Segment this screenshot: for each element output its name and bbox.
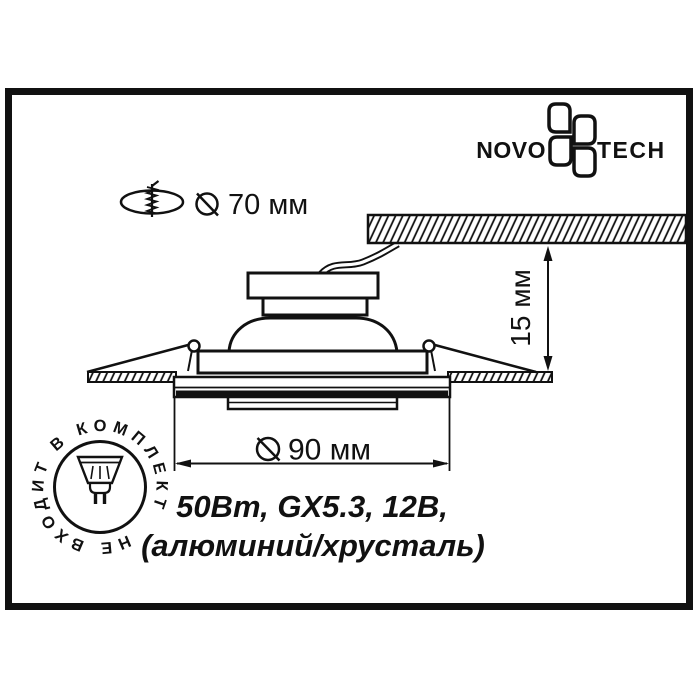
brand-wordmark-left: NOVO bbox=[476, 137, 546, 163]
depth-dimension: 15 мм bbox=[505, 246, 553, 371]
diameter-symbol-icon bbox=[257, 438, 280, 461]
housing-step bbox=[263, 298, 367, 315]
clip-screw-left bbox=[189, 341, 200, 352]
arrowhead-left bbox=[175, 460, 191, 468]
novotech-logo: NOVO TECH bbox=[476, 104, 665, 176]
spec-line-2: (алюминий/хрусталь) bbox=[141, 528, 485, 563]
arrowhead-right bbox=[433, 460, 449, 468]
product-spec-sheet: NOVO TECH 70 мм bbox=[0, 0, 700, 700]
housing-dome bbox=[229, 318, 397, 352]
brand-wordmark-right: TECH bbox=[597, 137, 666, 163]
ceiling-section-left bbox=[88, 372, 176, 382]
arrowhead-down bbox=[544, 356, 553, 371]
drill-hole-icon bbox=[121, 181, 183, 217]
cutout-annotation: 70 мм bbox=[121, 181, 308, 221]
trim-ring-body bbox=[198, 351, 427, 373]
depth-label: 15 мм bbox=[505, 269, 536, 346]
lamp-holder-box bbox=[248, 273, 378, 298]
diameter-symbol-icon bbox=[197, 194, 219, 216]
mounting-clip-left bbox=[87, 345, 192, 373]
fixture-drawing bbox=[87, 215, 686, 409]
spec-line-1: 50Вт, GX5.3, 12В, bbox=[176, 489, 448, 524]
trim-flange bbox=[174, 377, 450, 397]
arrowhead-up bbox=[544, 246, 553, 261]
ceiling-section-main bbox=[368, 215, 686, 243]
mounting-clip-right bbox=[431, 345, 536, 373]
technical-drawing: NOVO TECH 70 мм bbox=[0, 0, 700, 700]
ceiling-section-right bbox=[448, 372, 552, 382]
cutout-diameter-label: 70 мм bbox=[228, 189, 308, 221]
power-wire bbox=[321, 244, 398, 274]
flower-pinwheel-icon bbox=[549, 104, 595, 176]
spec-text: 50Вт, GX5.3, 12В, (алюминий/хрусталь) bbox=[141, 489, 485, 563]
clip-screw-right bbox=[424, 341, 435, 352]
glass-diffuser bbox=[228, 397, 397, 409]
diameter-label: 90 мм bbox=[288, 434, 371, 467]
